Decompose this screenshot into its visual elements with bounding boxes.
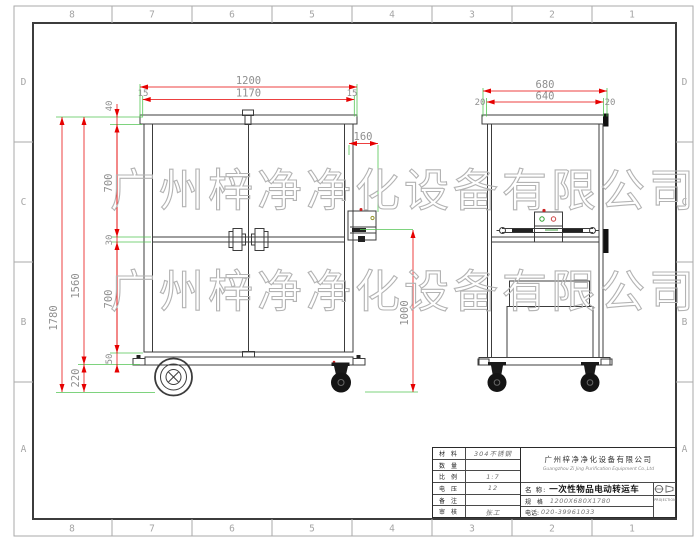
- dim-ground-clearance: 220: [70, 369, 82, 388]
- zone-col-top: 4: [389, 10, 395, 21]
- dim-side-inner-depth: 640: [536, 91, 555, 103]
- tb-value: 12: [466, 483, 520, 494]
- title-block-right: 广州梓净净化设备有限公司 Guangzhou Zi Jing Purificat…: [521, 448, 676, 517]
- zone-row-right: D: [682, 77, 688, 88]
- zone-col-bottom: 2: [549, 524, 555, 535]
- tb-value: 1:7: [466, 471, 520, 482]
- side-top-hinge: [603, 114, 609, 127]
- front-wheel: [155, 359, 192, 396]
- dim-front-overhang-left: 15: [138, 89, 149, 99]
- front-side-handle-box: [348, 208, 376, 242]
- dim-side-overhang-left: 20: [475, 98, 486, 108]
- side-caster-left: [488, 362, 507, 392]
- zone-col-top: 1: [629, 10, 635, 21]
- zone-col-bottom: 7: [149, 524, 155, 535]
- tb-label: 审 核: [433, 506, 466, 517]
- dim-base: 50: [105, 354, 115, 365]
- front-base: [133, 352, 365, 366]
- zone-col-top: 8: [69, 10, 75, 21]
- zone-col-top: 7: [149, 10, 155, 21]
- dim-handle-height: 1000: [399, 300, 411, 325]
- tb-projection-box: PROJECTION: [653, 483, 676, 517]
- projection-label: PROJECTION: [654, 498, 676, 502]
- zone-col-bottom: 1: [629, 524, 635, 535]
- zone-col-bottom: 4: [389, 524, 395, 535]
- dim-side-depth: 680: [536, 79, 555, 91]
- dim-panel-thickness: 40: [105, 101, 115, 112]
- zone-col-bottom: 8: [69, 524, 75, 535]
- zone-col-top: 2: [549, 10, 555, 21]
- tb-phone-row: 电话: 020-39961033: [521, 507, 654, 517]
- tb-row-scale: 比 例 1:7: [433, 471, 520, 483]
- phone-value: 020-39961033: [541, 508, 595, 516]
- product-name-label: 名 称:: [525, 484, 546, 494]
- extension-lines: [56, 84, 607, 393]
- front-view: [133, 110, 376, 396]
- front-top-panel: [140, 115, 357, 124]
- tb-label: 材 料: [433, 448, 466, 459]
- zone-col-top: 5: [309, 10, 315, 21]
- dim-lower-section: 700: [103, 290, 115, 309]
- zone-row-left: A: [21, 444, 27, 455]
- tb-value: 张工: [466, 506, 520, 517]
- tb-row-voltage: 电 压 12: [433, 483, 520, 495]
- tb-label: 比 例: [433, 471, 466, 482]
- phone-label: 电话:: [525, 508, 539, 517]
- tb-row-quantity: 数 量: [433, 460, 520, 472]
- zone-row-left: B: [21, 317, 27, 328]
- front-caster: [331, 361, 351, 393]
- indicator-green: [540, 217, 544, 221]
- projection-symbol-icon: [654, 483, 674, 495]
- zone-row-right: C: [682, 197, 688, 208]
- tb-label: 备 注: [433, 495, 466, 506]
- tb-row-material: 材 料 304不锈钢: [433, 448, 520, 460]
- zone-col-top: 6: [229, 10, 235, 21]
- drawing-sheet: 8 7 6 5 4 3 2 1 8 7 6 5 4 3 2 1 D C B A …: [0, 0, 700, 544]
- side-lower-box: [507, 307, 593, 358]
- dim-overall-height: 1780: [48, 305, 60, 330]
- title-block-left: 材 料 304不锈钢 数 量 比 例 1:7 电 压 12 备 注 审 核 张工: [433, 448, 521, 517]
- dim-rail: 30: [105, 235, 115, 246]
- zone-col-bottom: 6: [229, 524, 235, 535]
- tb-value: [466, 460, 520, 471]
- zone-row-right: A: [682, 444, 688, 455]
- indicator-red: [551, 217, 555, 221]
- tb-company: 广州梓净净化设备有限公司 Guangzhou Zi Jing Purificat…: [521, 448, 676, 483]
- tb-value: 304不锈钢: [466, 448, 520, 459]
- product-name-value: 一次性物品电动转运车: [549, 483, 639, 495]
- title-block: 材 料 304不锈钢 数 量 比 例 1:7 电 压 12 备 注 审 核 张工: [432, 447, 677, 518]
- zone-row-right: B: [682, 317, 688, 328]
- dim-front-inner-width: 1170: [236, 88, 261, 100]
- tb-row-approve: 审 核 张工: [433, 506, 520, 517]
- side-body: [488, 124, 604, 358]
- dim-front-width: 1200: [236, 75, 261, 87]
- dim-handle-offset: 160: [354, 131, 373, 143]
- side-upper-box: [510, 281, 590, 307]
- spec-value: 1200X680X1780: [550, 497, 611, 505]
- side-mid-hinge: [604, 229, 609, 253]
- spec-label: 规 格: [525, 497, 545, 506]
- dim-body-height: 1560: [70, 273, 82, 298]
- company-name-cn: 广州梓净净化设备有限公司: [521, 454, 676, 465]
- tb-label: 电 压: [433, 483, 466, 494]
- side-push-rod: [497, 228, 599, 234]
- tb-row-remark: 备 注: [433, 495, 520, 507]
- tb-spec-row: 规 格 1200X680X1780: [521, 496, 654, 507]
- dim-side-overhang-right: 20: [605, 98, 616, 108]
- dim-front-overhang-right: 15: [347, 89, 358, 99]
- zone-col-bottom: 5: [309, 524, 315, 535]
- company-name-en: Guangzhou Zi Jing Purification Equipment…: [521, 467, 676, 472]
- tb-value: [466, 495, 520, 506]
- zone-row-left: D: [21, 77, 27, 88]
- side-view: [478, 114, 612, 393]
- dim-upper-section: 700: [103, 174, 115, 193]
- zone-row-left: C: [21, 197, 27, 208]
- zone-col-bottom: 3: [469, 524, 475, 535]
- side-caster-right: [581, 362, 600, 392]
- tb-label: 数 量: [433, 460, 466, 471]
- side-top-panel: [482, 115, 607, 124]
- zone-col-top: 3: [469, 10, 475, 21]
